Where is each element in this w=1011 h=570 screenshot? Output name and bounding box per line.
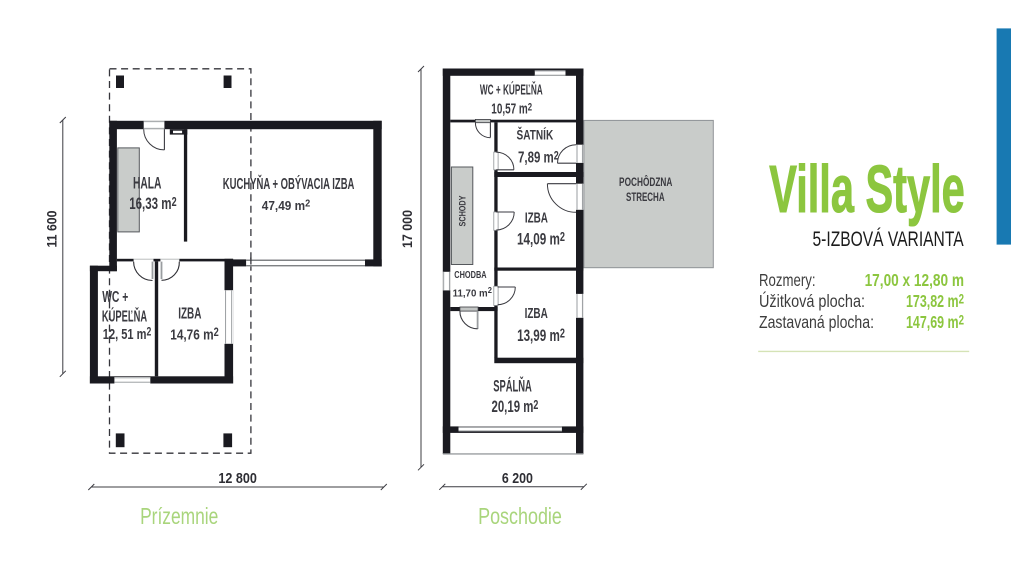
svg-text:7,89 m2: 7,89 m2 <box>518 148 559 166</box>
svg-text:Zastavaná plocha:: Zastavaná plocha: <box>759 312 874 332</box>
svg-text:13,99 m2: 13,99 m2 <box>517 325 565 344</box>
svg-text:47,49 m2: 47,49 m2 <box>262 198 311 213</box>
svg-text:Úžitková plocha:: Úžitková plocha: <box>759 290 865 311</box>
svg-text:14,09 m2: 14,09 m2 <box>517 229 565 248</box>
svg-text:HALA: HALA <box>133 174 162 192</box>
svg-text:14,76 m2: 14,76 m2 <box>170 326 219 343</box>
svg-text:Prízemnie: Prízemnie <box>140 503 218 529</box>
svg-text:WC +: WC + <box>102 289 128 306</box>
svg-text:Poschodie: Poschodie <box>478 503 562 529</box>
svg-text:CHODBA: CHODBA <box>454 269 487 281</box>
svg-text:20,19 m2: 20,19 m2 <box>492 397 539 416</box>
svg-text:ŠATNÍK: ŠATNÍK <box>517 126 554 143</box>
svg-text:6 200: 6 200 <box>502 471 533 487</box>
svg-text:KÚPEĽŇA: KÚPEĽŇA <box>102 307 147 326</box>
svg-text:KUCHYŇA + OBÝVACIA IZBA: KUCHYŇA + OBÝVACIA IZBA <box>223 175 355 193</box>
svg-text:SPÁLŇA: SPÁLŇA <box>493 377 532 396</box>
svg-text:POCHÔDZNA: POCHÔDZNA <box>619 176 672 189</box>
svg-text:IZBA: IZBA <box>525 209 548 226</box>
svg-text:11,70 m2: 11,70 m2 <box>453 286 493 299</box>
svg-text:12 800: 12 800 <box>218 471 257 487</box>
svg-text:12, 51 m2: 12, 51 m2 <box>103 326 152 343</box>
svg-text:Rozmery:: Rozmery: <box>759 270 816 290</box>
svg-text:16,33 m2: 16,33 m2 <box>129 194 176 213</box>
svg-text:SCHODY: SCHODY <box>458 195 469 226</box>
svg-text:WC + KÚPEĽŇA: WC + KÚPEĽŇA <box>480 80 543 98</box>
svg-text:IZBA: IZBA <box>525 305 548 322</box>
svg-text:STRECHA: STRECHA <box>626 192 665 204</box>
svg-text:IZBA: IZBA <box>178 306 201 323</box>
svg-text:17 000: 17 000 <box>399 210 415 248</box>
svg-text:17,00 x 12,80 m: 17,00 x 12,80 m <box>865 270 964 290</box>
svg-text:10,57 m2: 10,57 m2 <box>491 101 532 117</box>
svg-text:11 600: 11 600 <box>45 211 60 248</box>
svg-text:173,82 m2: 173,82 m2 <box>906 291 964 311</box>
svg-text:147,69 m2: 147,69 m2 <box>906 312 964 332</box>
svg-text:Villa Style: Villa Style <box>769 152 965 227</box>
svg-text:5-IZBOVÁ VARIANTA: 5-IZBOVÁ VARIANTA <box>813 228 964 251</box>
